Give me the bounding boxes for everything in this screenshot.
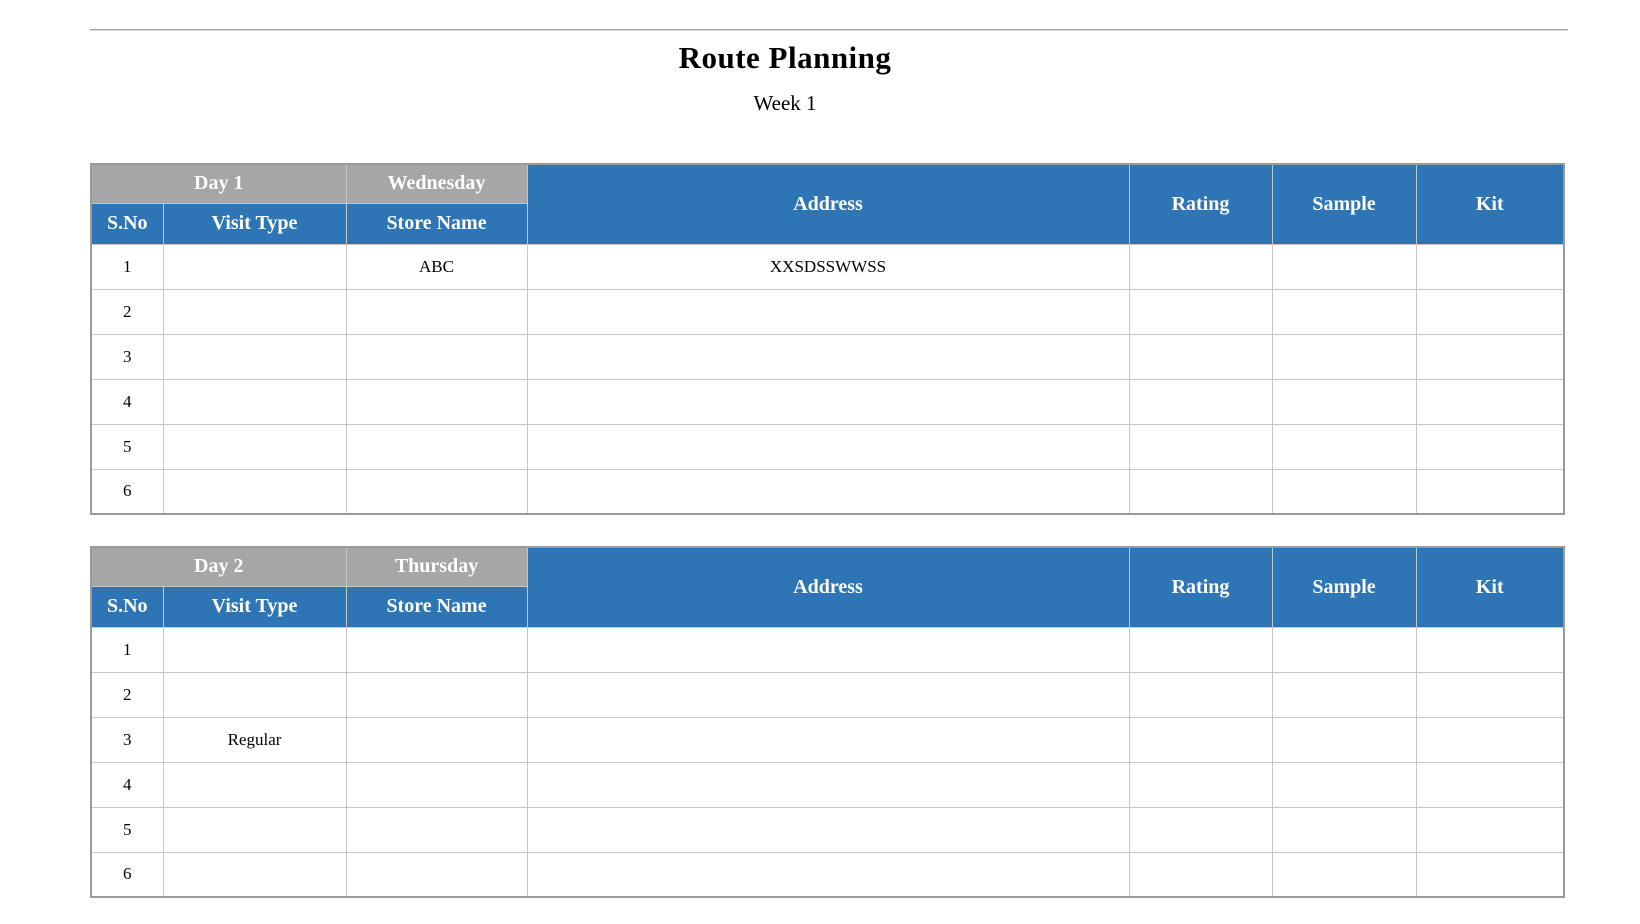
cell-sno: 3 (91, 717, 163, 762)
day-name-cell: Wednesday (346, 164, 527, 203)
cell-address: XXSDSSWWSS (527, 244, 1129, 289)
cell-store-name (346, 334, 527, 379)
day-name-cell: Thursday (346, 547, 527, 586)
cell-store-name (346, 852, 527, 897)
column-header-store-name: Store Name (346, 586, 527, 627)
cell-kit (1416, 424, 1564, 469)
cell-sample (1272, 807, 1416, 852)
column-header-kit: Kit (1416, 164, 1564, 244)
cell-address (527, 334, 1129, 379)
column-header-kit: Kit (1416, 547, 1564, 627)
cell-kit (1416, 379, 1564, 424)
cell-store-name (346, 807, 527, 852)
cell-visit-type (163, 807, 346, 852)
cell-sample (1272, 469, 1416, 514)
cell-kit (1416, 627, 1564, 672)
cell-rating (1129, 762, 1272, 807)
cell-sample (1272, 424, 1416, 469)
cell-kit (1416, 289, 1564, 334)
cell-visit-type (163, 672, 346, 717)
cell-sample (1272, 244, 1416, 289)
page-title: Route Planning (0, 40, 1570, 76)
cell-sample (1272, 627, 1416, 672)
cell-rating (1129, 244, 1272, 289)
cell-address (527, 852, 1129, 897)
cell-sno: 6 (91, 852, 163, 897)
cell-sno: 5 (91, 807, 163, 852)
column-header-sno: S.No (91, 203, 163, 244)
day-2-rows: 123Regular456 (91, 627, 1564, 897)
cell-address (527, 424, 1129, 469)
cell-rating (1129, 717, 1272, 762)
cell-sno: 6 (91, 469, 163, 514)
column-header-sno: S.No (91, 586, 163, 627)
cell-sno: 5 (91, 424, 163, 469)
cell-address (527, 289, 1129, 334)
cell-sno: 1 (91, 244, 163, 289)
cell-visit-type (163, 334, 346, 379)
cell-address (527, 379, 1129, 424)
cell-sample (1272, 762, 1416, 807)
day-header-row: Day 2 Thursday Address Rating Sample Kit (91, 547, 1564, 586)
table-row: 1ABCXXSDSSWWSS (91, 244, 1564, 289)
cell-kit (1416, 334, 1564, 379)
cell-address (527, 762, 1129, 807)
cell-visit-type: Regular (163, 717, 346, 762)
cell-address (527, 627, 1129, 672)
cell-sno: 4 (91, 762, 163, 807)
cell-rating (1129, 627, 1272, 672)
cell-rating (1129, 852, 1272, 897)
route-planning-page: Route Planning Week 1 Day 1 Wednesday Ad… (0, 0, 1640, 924)
cell-kit (1416, 244, 1564, 289)
top-divider-rule (90, 29, 1568, 31)
cell-visit-type (163, 627, 346, 672)
table-row: 3 (91, 334, 1564, 379)
page-header: Route Planning Week 1 (0, 40, 1570, 116)
cell-kit (1416, 852, 1564, 897)
cell-rating (1129, 672, 1272, 717)
table-row: 6 (91, 852, 1564, 897)
cell-sample (1272, 717, 1416, 762)
column-header-visit-type: Visit Type (163, 586, 346, 627)
day-1-rows: 1ABCXXSDSSWWSS23456 (91, 244, 1564, 514)
cell-sample (1272, 379, 1416, 424)
column-header-rating: Rating (1129, 164, 1272, 244)
column-header-address: Address (527, 164, 1129, 244)
cell-visit-type (163, 424, 346, 469)
table-row: 4 (91, 762, 1564, 807)
cell-visit-type (163, 762, 346, 807)
cell-visit-type (163, 244, 346, 289)
cell-rating (1129, 807, 1272, 852)
cell-sno: 3 (91, 334, 163, 379)
cell-sno: 1 (91, 627, 163, 672)
cell-sample (1272, 852, 1416, 897)
cell-rating (1129, 424, 1272, 469)
cell-store-name (346, 762, 527, 807)
table-row: 6 (91, 469, 1564, 514)
table-row: 2 (91, 289, 1564, 334)
column-header-rating: Rating (1129, 547, 1272, 627)
cell-store-name (346, 379, 527, 424)
cell-visit-type (163, 379, 346, 424)
cell-kit (1416, 762, 1564, 807)
cell-address (527, 672, 1129, 717)
cell-kit (1416, 672, 1564, 717)
cell-store-name: ABC (346, 244, 527, 289)
cell-visit-type (163, 852, 346, 897)
cell-store-name (346, 717, 527, 762)
cell-kit (1416, 807, 1564, 852)
cell-sample (1272, 334, 1416, 379)
cell-address (527, 469, 1129, 514)
day-label-cell: Day 1 (91, 164, 346, 203)
cell-sno: 2 (91, 672, 163, 717)
table-row: 5 (91, 807, 1564, 852)
day-header-row: Day 1 Wednesday Address Rating Sample Ki… (91, 164, 1564, 203)
cell-address (527, 717, 1129, 762)
cell-sample (1272, 289, 1416, 334)
table-row: 1 (91, 627, 1564, 672)
route-table-day-2: Day 2 Thursday Address Rating Sample Kit… (90, 546, 1565, 898)
cell-rating (1129, 289, 1272, 334)
cell-sno: 4 (91, 379, 163, 424)
day-label-cell: Day 2 (91, 547, 346, 586)
cell-rating (1129, 334, 1272, 379)
cell-kit (1416, 469, 1564, 514)
cell-address (527, 807, 1129, 852)
cell-store-name (346, 627, 527, 672)
cell-store-name (346, 424, 527, 469)
table-row: 2 (91, 672, 1564, 717)
cell-rating (1129, 469, 1272, 514)
column-header-store-name: Store Name (346, 203, 527, 244)
cell-sno: 2 (91, 289, 163, 334)
column-header-sample: Sample (1272, 547, 1416, 627)
cell-sample (1272, 672, 1416, 717)
cell-rating (1129, 379, 1272, 424)
table-row: 3Regular (91, 717, 1564, 762)
cell-visit-type (163, 469, 346, 514)
column-header-sample: Sample (1272, 164, 1416, 244)
cell-store-name (346, 469, 527, 514)
table-row: 5 (91, 424, 1564, 469)
cell-store-name (346, 672, 527, 717)
column-header-address: Address (527, 547, 1129, 627)
table-row: 4 (91, 379, 1564, 424)
cell-visit-type (163, 289, 346, 334)
route-table-day-1: Day 1 Wednesday Address Rating Sample Ki… (90, 163, 1565, 515)
cell-kit (1416, 717, 1564, 762)
column-header-visit-type: Visit Type (163, 203, 346, 244)
cell-store-name (346, 289, 527, 334)
page-subtitle: Week 1 (0, 91, 1570, 116)
